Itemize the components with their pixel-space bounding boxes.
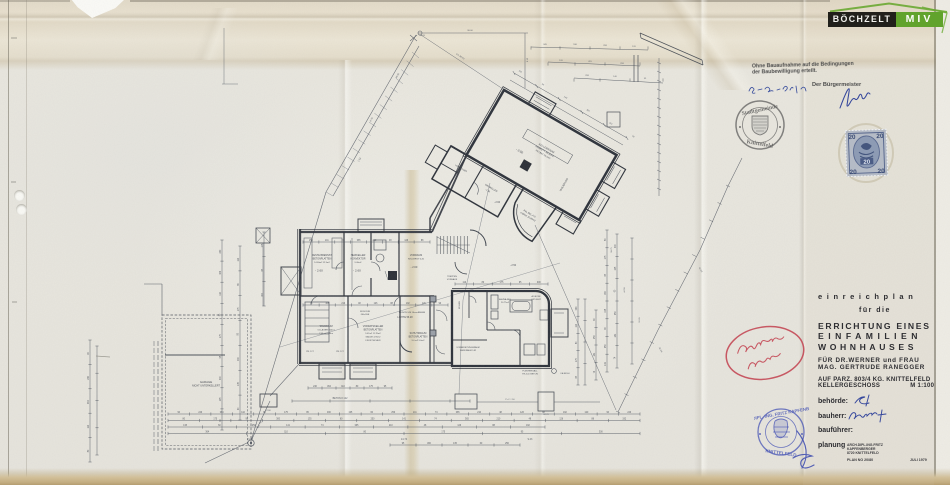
svg-text:20: 20 [877,168,885,175]
svg-text:20: 20 [848,134,856,141]
svg-text:20: 20 [863,160,871,166]
svg-text:20: 20 [876,133,884,140]
svg-text:20: 20 [849,169,857,176]
